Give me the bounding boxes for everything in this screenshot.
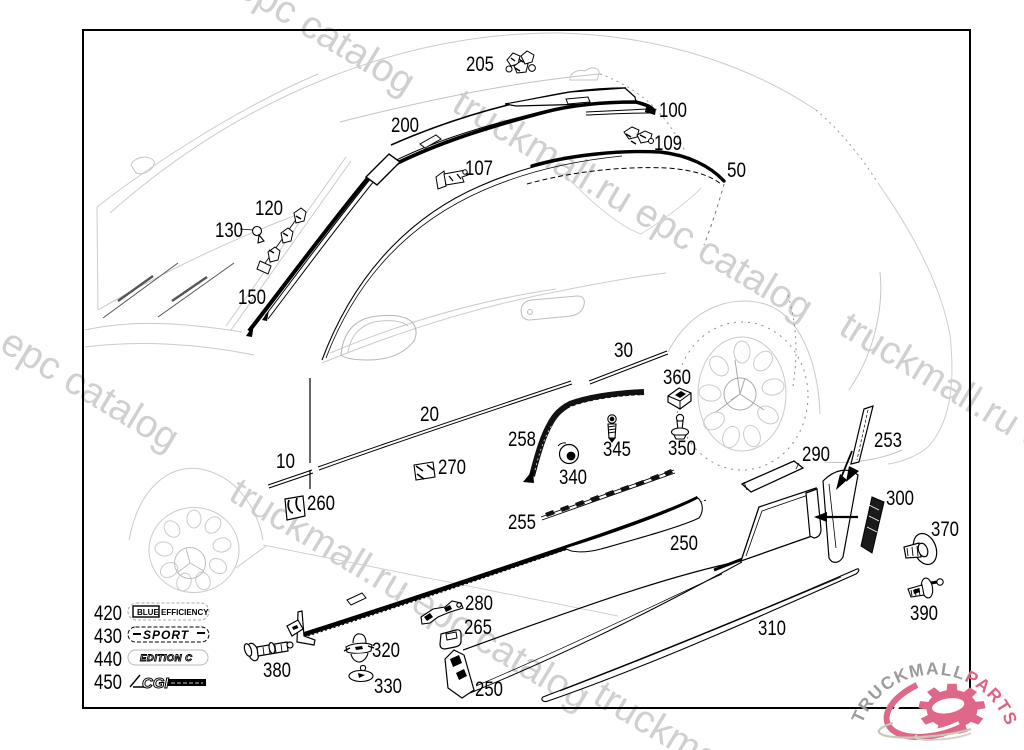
svg-text:370: 370 (931, 518, 959, 541)
svg-text:250: 250 (475, 678, 503, 701)
svg-text:253: 253 (874, 429, 902, 452)
svg-text:450: 450 (94, 671, 122, 694)
svg-text:CGI: CGI (142, 675, 170, 692)
svg-text:100: 100 (659, 99, 687, 122)
svg-text:255: 255 (508, 511, 536, 534)
svg-text:130: 130 (215, 219, 243, 242)
svg-text:300: 300 (886, 487, 914, 510)
svg-text:260: 260 (307, 492, 335, 515)
svg-text:200: 200 (391, 114, 419, 137)
svg-text:420: 420 (94, 602, 122, 625)
svg-text:truckmall.ru epc catalog: truckmall.ru epc catalog (445, 81, 820, 330)
svg-text:330: 330 (374, 675, 402, 698)
svg-text:20: 20 (420, 403, 439, 426)
svg-text:360: 360 (663, 366, 691, 389)
svg-text:250: 250 (670, 532, 698, 555)
svg-text:109: 109 (654, 132, 682, 155)
svg-text:440: 440 (94, 648, 122, 671)
svg-text:380: 380 (263, 659, 291, 682)
svg-text:340: 340 (559, 466, 587, 489)
svg-text:350: 350 (668, 437, 696, 460)
svg-text:290: 290 (802, 443, 830, 466)
svg-text:truckmall.ru epc catalog: truckmall.ru epc catalog (47, 0, 422, 104)
svg-text:280: 280 (465, 592, 493, 615)
svg-text:265: 265 (464, 616, 492, 639)
svg-text:258: 258 (508, 428, 536, 451)
svg-text:EFFICIENCY: EFFICIENCY (161, 608, 209, 617)
svg-text:320: 320 (372, 639, 400, 662)
svg-text:50: 50 (727, 159, 746, 182)
svg-text:430: 430 (94, 625, 122, 648)
svg-text:390: 390 (910, 602, 938, 625)
svg-text:10: 10 (276, 450, 295, 473)
svg-text:270: 270 (438, 456, 466, 479)
svg-text:150: 150 (238, 286, 266, 309)
svg-text:310: 310 (758, 617, 786, 640)
svg-text:30: 30 (614, 339, 633, 362)
svg-text:SPORT: SPORT (143, 628, 190, 642)
svg-text:BLUE: BLUE (137, 608, 159, 617)
svg-text:EDITION C: EDITION C (140, 653, 193, 664)
svg-text:107: 107 (465, 157, 493, 180)
svg-text:120: 120 (255, 197, 283, 220)
svg-text:345: 345 (603, 438, 631, 461)
svg-text:205: 205 (466, 53, 494, 76)
svg-text:truckmall.ru epc catalog: truckmall.ru epc catalog (0, 211, 187, 460)
